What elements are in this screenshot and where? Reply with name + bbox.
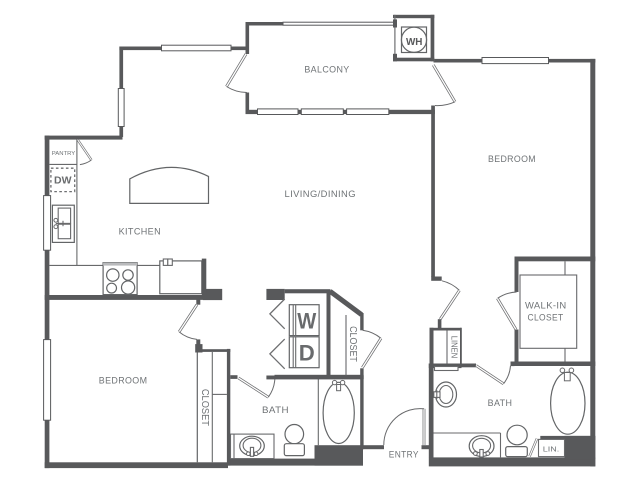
svg-text:BEDROOM: BEDROOM xyxy=(99,375,148,386)
svg-text:W: W xyxy=(297,309,316,334)
svg-text:BALCONY: BALCONY xyxy=(304,64,350,75)
svg-text:WH: WH xyxy=(406,37,423,48)
svg-text:WALK-IN: WALK-IN xyxy=(525,300,567,311)
svg-text:CLOSET: CLOSET xyxy=(347,326,358,362)
svg-text:KITCHEN: KITCHEN xyxy=(119,227,161,238)
svg-text:BATH: BATH xyxy=(262,405,289,416)
svg-text:DW: DW xyxy=(54,175,72,187)
svg-text:CLOSET: CLOSET xyxy=(528,313,564,324)
svg-text:CLOSET: CLOSET xyxy=(199,389,210,426)
svg-text:LINEN: LINEN xyxy=(449,336,458,359)
svg-text:ENTRY: ENTRY xyxy=(389,450,419,461)
svg-text:LIVING/DINING: LIVING/DINING xyxy=(285,189,356,200)
svg-text:D: D xyxy=(299,341,315,366)
svg-text:PANTRY: PANTRY xyxy=(52,151,76,157)
svg-text:BATH: BATH xyxy=(488,398,513,409)
svg-text:BEDROOM: BEDROOM xyxy=(488,154,536,165)
svg-text:LIN.: LIN. xyxy=(543,446,560,453)
